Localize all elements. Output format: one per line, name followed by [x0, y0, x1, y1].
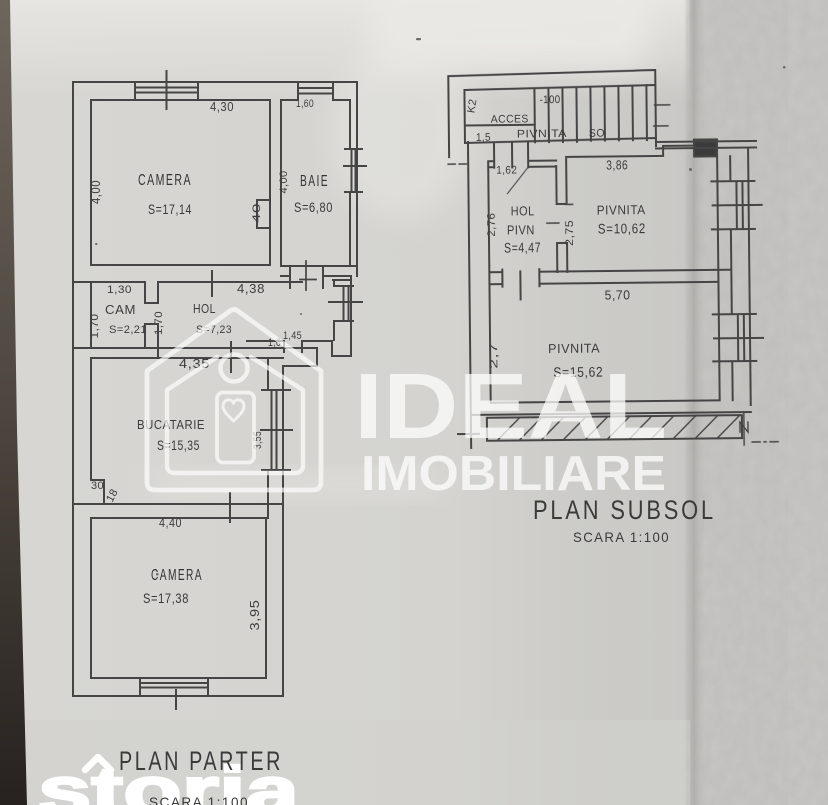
svg-text:SCARA 1:100: SCARA 1:100 [149, 794, 249, 805]
svg-text:S=10,62: S=10,62 [598, 220, 646, 237]
svg-text:S=17,38: S=17,38 [143, 590, 189, 606]
svg-text:S=15,35: S=15,35 [157, 437, 200, 453]
svg-text:1,70: 1,70 [89, 314, 101, 339]
svg-text:2,76: 2,76 [486, 213, 498, 237]
svg-text:S=4,47: S=4,47 [504, 239, 541, 255]
svg-text:IDEAL: IDEAL [354, 354, 667, 458]
svg-text:PLAN PARTER: PLAN PARTER [119, 746, 283, 776]
svg-text:1,70: 1,70 [153, 311, 165, 335]
svg-text:3,95: 3,95 [247, 600, 262, 631]
svg-text:-100: -100 [539, 94, 560, 106]
svg-text:2,75: 2,75 [564, 220, 576, 246]
svg-text:4,38: 4,38 [237, 281, 265, 296]
svg-text:S=17,14: S=17,14 [148, 201, 192, 217]
svg-text:HOL: HOL [511, 203, 535, 218]
svg-text:4,00: 4,00 [278, 171, 290, 194]
svg-text:IMOBILIARE: IMOBILIARE [361, 447, 666, 501]
svg-text:30: 30 [91, 480, 104, 492]
svg-text:PIVNITA: PIVNITA [597, 202, 646, 218]
svg-text:3,86: 3,86 [606, 157, 628, 172]
svg-text:5,70: 5,70 [605, 287, 631, 302]
svg-text:4,40: 4,40 [159, 515, 182, 530]
svg-text:K2: K2 [465, 98, 479, 114]
svg-text:PIVNITA: PIVNITA [517, 128, 567, 141]
svg-text:S=2,21: S=2,21 [109, 324, 147, 336]
svg-text:ACCES: ACCES [491, 113, 529, 125]
svg-text:1,60: 1,60 [296, 98, 314, 110]
svg-text:CAMERA: CAMERA [138, 172, 192, 189]
svg-text:4,30: 4,30 [210, 99, 234, 114]
svg-text:BAIE: BAIE [300, 173, 329, 190]
svg-text:S=6,80: S=6,80 [294, 199, 333, 215]
svg-text:1,30: 1,30 [107, 284, 132, 296]
svg-text:PIVN: PIVN [507, 222, 535, 237]
svg-text:40: 40 [251, 203, 263, 223]
svg-text:1,45: 1,45 [283, 330, 302, 342]
svg-text:1,62: 1,62 [496, 164, 517, 176]
svg-text:CAM: CAM [105, 302, 136, 317]
svg-text:4,00: 4,00 [88, 180, 103, 204]
svg-text:CAMERA: CAMERA [151, 567, 203, 584]
svg-text:SO: SO [589, 128, 605, 140]
svg-text:HOL: HOL [193, 301, 216, 316]
svg-text:1,5: 1,5 [476, 132, 491, 144]
svg-text:SCARA 1:100: SCARA 1:100 [573, 529, 670, 545]
